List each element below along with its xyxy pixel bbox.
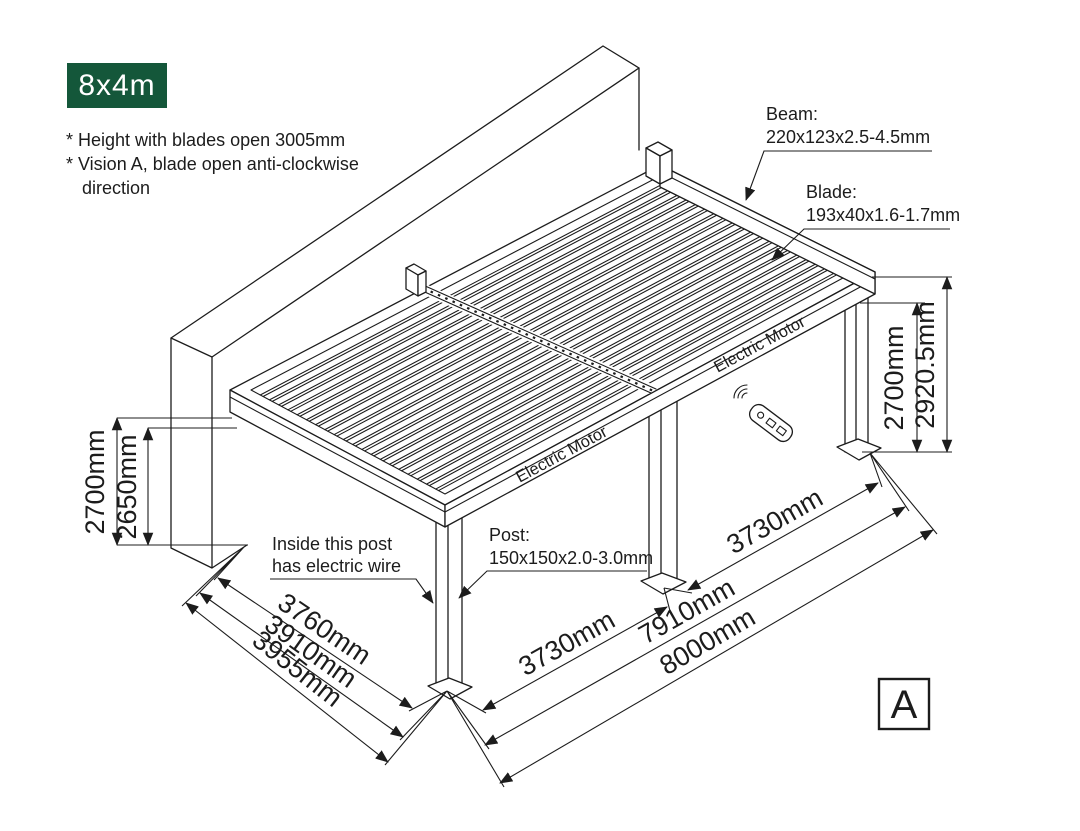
- front-left-post: [428, 505, 472, 699]
- dim-wall-height-outer: 2700mm: [80, 429, 110, 534]
- wire-callout-line1: Inside this post: [272, 534, 392, 554]
- wall-bracket-middle: [406, 264, 426, 296]
- post-base-plate: [837, 439, 881, 460]
- remote-control-icon: [734, 385, 796, 445]
- dim-post-height: 2700mm: [879, 325, 909, 430]
- view-label: A: [891, 683, 918, 727]
- beam-callout-title: Beam:: [766, 104, 818, 124]
- blade-callout-spec: 193x40x1.6-1.7mm: [806, 205, 960, 225]
- beam-callout-spec: 220x123x2.5-4.5mm: [766, 127, 930, 147]
- isometric-drawing: Electric Motor Electric Motor 2: [0, 0, 1080, 831]
- blade-callout-title: Blade:: [806, 182, 857, 202]
- post-callout-title: Post:: [489, 525, 530, 545]
- view-label-box: A: [879, 679, 929, 729]
- front-right-post: [837, 290, 881, 460]
- dim-bay-right: 3730mm: [722, 482, 828, 560]
- dim-bay-left: 3730mm: [514, 604, 620, 681]
- wireless-signal-icon: [734, 385, 747, 398]
- dim-total-height: 2920.5mm: [910, 301, 940, 429]
- wire-callout-line2: has electric wire: [272, 556, 401, 576]
- pergola-technical-drawing: 8x4m * Height with blades open 3005mm * …: [0, 0, 1080, 831]
- dim-wall-height-inner: 2650mm: [112, 434, 142, 539]
- post-leader-line: [459, 571, 647, 598]
- wall-bracket-right: [646, 142, 672, 184]
- post-callout-spec: 150x150x2.0-3.0mm: [489, 548, 653, 568]
- callout-post: Post: 150x150x2.0-3.0mm: [459, 525, 653, 598]
